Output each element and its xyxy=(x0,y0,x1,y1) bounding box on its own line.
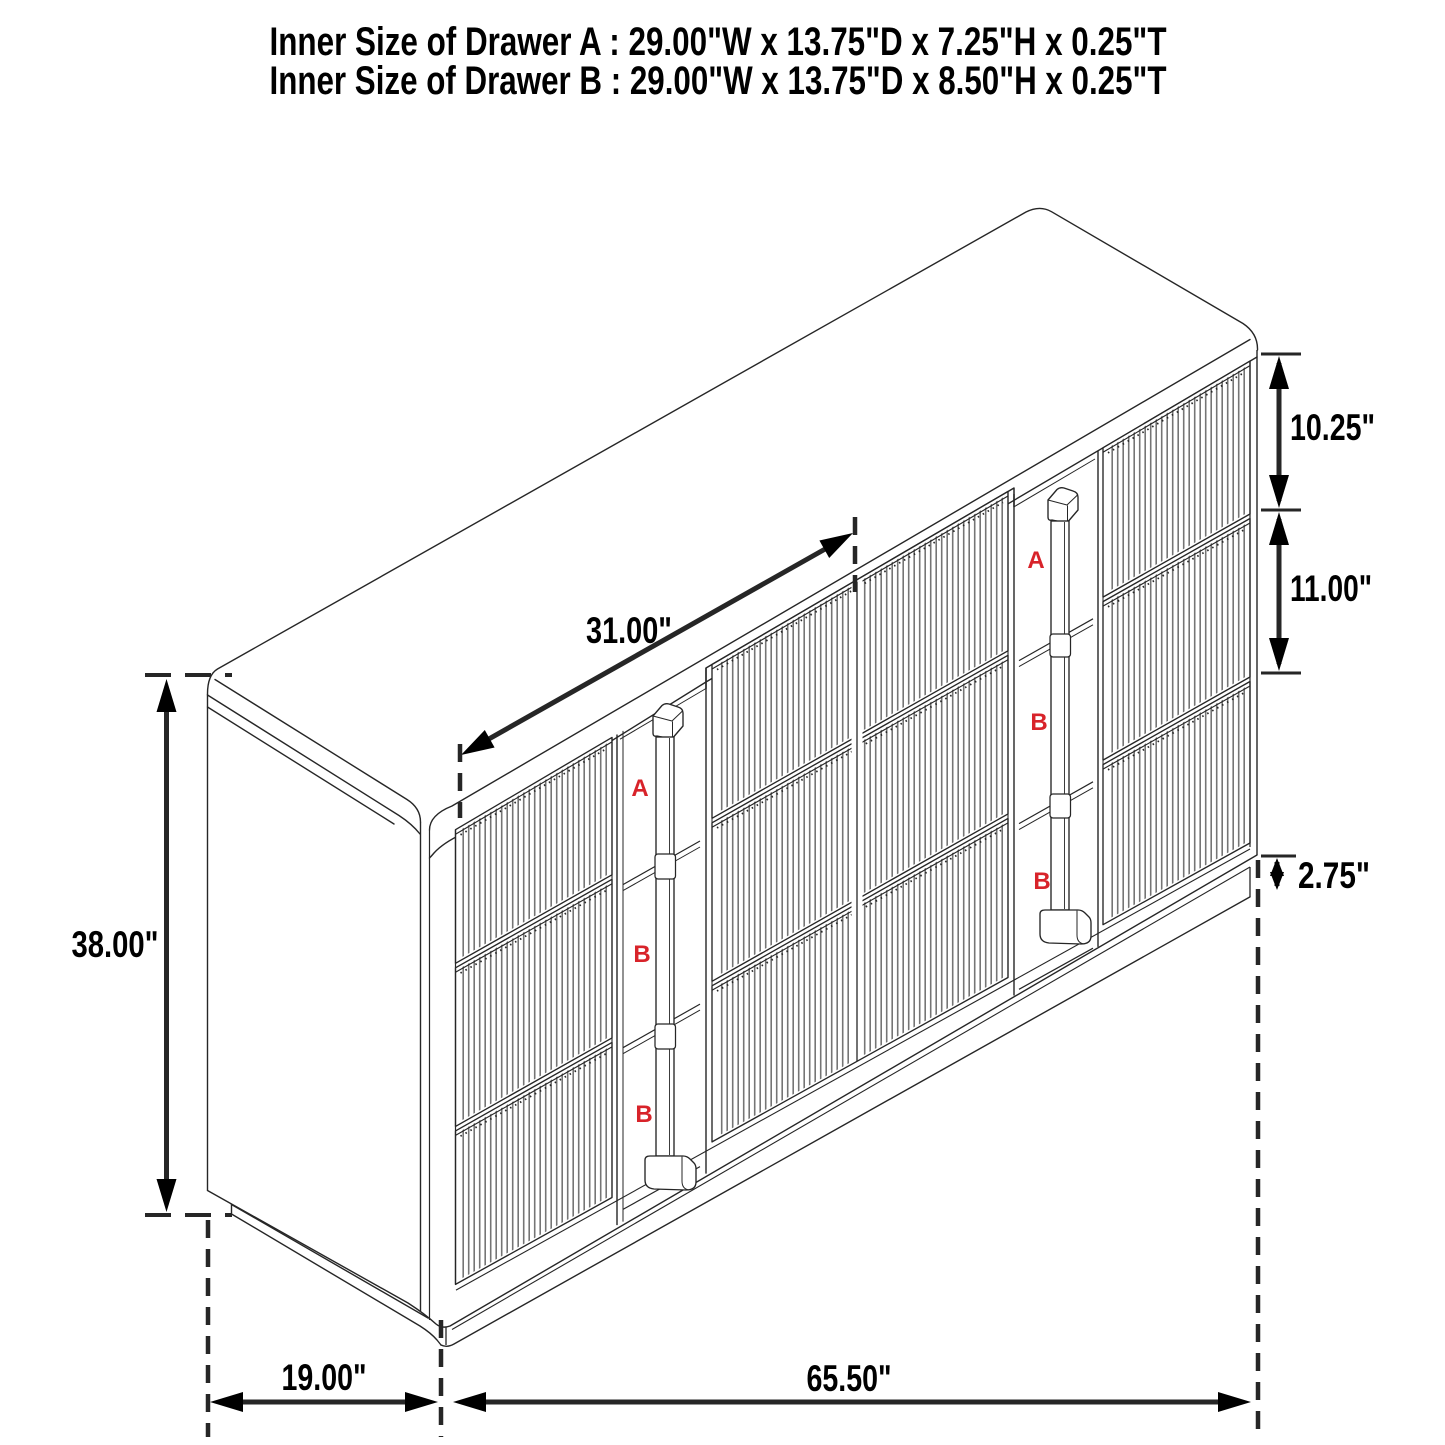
svg-text:11.00": 11.00" xyxy=(1290,568,1372,609)
svg-text:B: B xyxy=(635,1101,652,1128)
svg-text:A: A xyxy=(631,775,648,802)
svg-text:A: A xyxy=(1027,547,1044,574)
svg-text:B: B xyxy=(1030,709,1047,736)
svg-text:Inner Size of Drawer B : 29.00: Inner Size of Drawer B : 29.00"W x 13.75… xyxy=(270,59,1167,103)
svg-text:Inner Size of Drawer A : 29.00: Inner Size of Drawer A : 29.00"W x 13.75… xyxy=(270,20,1167,64)
svg-text:B: B xyxy=(633,941,650,968)
svg-text:B: B xyxy=(1033,868,1050,895)
svg-text:10.25": 10.25" xyxy=(1290,407,1375,448)
svg-text:65.50": 65.50" xyxy=(807,1358,892,1399)
svg-text:38.00": 38.00" xyxy=(72,924,159,965)
svg-text:19.00": 19.00" xyxy=(282,1357,367,1398)
svg-text:31.00": 31.00" xyxy=(586,610,672,651)
svg-text:2.75": 2.75" xyxy=(1298,855,1370,896)
